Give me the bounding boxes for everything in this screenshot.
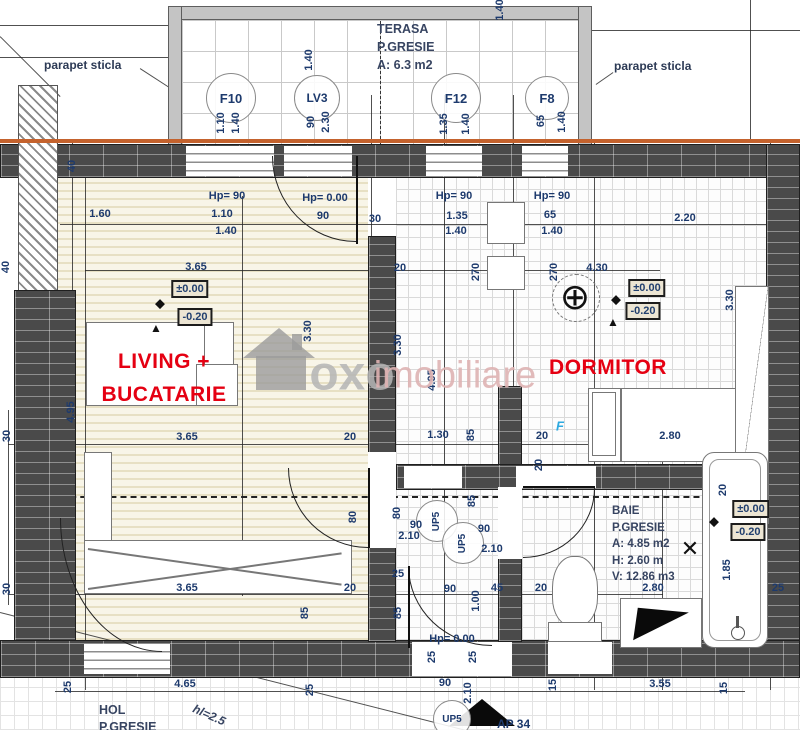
parapet-orange-line bbox=[0, 139, 800, 143]
tag-circle-lv3: LV3 bbox=[294, 75, 340, 121]
level-marker: ±0.00 bbox=[171, 280, 208, 298]
dim-label: 25 bbox=[392, 568, 404, 580]
hp-label: Hp= 90 bbox=[534, 190, 570, 202]
symbol-mark: ⊕ bbox=[560, 279, 590, 315]
bed-pillow bbox=[592, 392, 616, 456]
dim-label: 4.95 bbox=[65, 401, 77, 422]
dim-label: 1.40 bbox=[494, 0, 506, 21]
dim-label: 85 bbox=[465, 429, 477, 441]
dim-label: 25 bbox=[467, 651, 479, 663]
bed-line bbox=[620, 389, 622, 461]
tag-label: UP5 bbox=[457, 533, 468, 552]
window-opening-f8 bbox=[522, 146, 568, 176]
opening-baie-niche bbox=[548, 642, 612, 674]
level-marker: -0.20 bbox=[730, 523, 765, 541]
dim-label: 20 bbox=[535, 582, 547, 594]
dim-label: 40 bbox=[66, 160, 78, 172]
living-door-opening bbox=[368, 452, 396, 548]
dim-line bbox=[592, 30, 800, 31]
symbol-mark: ◆ bbox=[709, 515, 719, 528]
dim-label: 2.10 bbox=[398, 530, 419, 542]
dim-label: 2.20 bbox=[674, 212, 695, 224]
parapet-right-leader bbox=[596, 72, 614, 85]
terasa-finish: P.GRESIE bbox=[377, 38, 434, 56]
dim-label: 3.65 bbox=[176, 582, 197, 594]
baie-name: BAIE bbox=[612, 503, 675, 520]
dim-label: 1.30 bbox=[427, 429, 448, 441]
dim-label: 3.30 bbox=[724, 289, 736, 310]
dim-label: 40 bbox=[0, 261, 12, 273]
dim-label: 85 bbox=[392, 607, 404, 619]
terasa-name: TERASA bbox=[377, 20, 434, 38]
symbol-mark: ◆ bbox=[155, 297, 165, 310]
baie-area: A: 4.85 m2 bbox=[612, 536, 675, 553]
dim-label: 3.65 bbox=[176, 431, 197, 443]
level-marker: ±0.00 bbox=[732, 500, 769, 518]
symbol-mark: ▲ bbox=[607, 316, 619, 328]
living-door-leaf bbox=[368, 468, 370, 548]
bathtub-tap-stem bbox=[736, 616, 739, 628]
apartment-label: AP 34 bbox=[497, 717, 530, 730]
symbol-mark: ◆ bbox=[611, 293, 621, 306]
dim-line bbox=[242, 196, 243, 596]
hp-label: Hp= 90 bbox=[209, 190, 245, 202]
symbol-mark: ✕ bbox=[681, 538, 699, 560]
tag-label: LV3 bbox=[306, 91, 327, 105]
symbol-mark: ▲ bbox=[150, 322, 162, 334]
parapet-label-left: parapet sticla bbox=[44, 58, 121, 72]
dim-label: 20 bbox=[533, 459, 545, 471]
dim-label: 25 bbox=[304, 684, 316, 696]
entrance-door-leaf bbox=[408, 566, 410, 648]
terrace-wall-left bbox=[168, 6, 182, 145]
dim-label: 1.00 bbox=[470, 590, 482, 611]
dormitor-desk bbox=[487, 202, 525, 244]
window-opening-f10 bbox=[186, 146, 274, 176]
dim-label: 1.40 bbox=[556, 111, 568, 132]
dim-label: 1.40 bbox=[215, 225, 236, 237]
dim-label: 15 bbox=[547, 679, 559, 691]
bathtub-tap bbox=[731, 626, 745, 640]
dim-label: 4.95 bbox=[426, 369, 438, 390]
level-marker: ±0.00 bbox=[628, 279, 665, 297]
parapet-label-right: parapet sticla bbox=[614, 59, 691, 73]
tag-label: F10 bbox=[220, 91, 242, 106]
dim-label: 80 bbox=[391, 507, 403, 519]
dim-label: 30 bbox=[1, 583, 13, 595]
dim-line bbox=[85, 150, 86, 690]
dim-line bbox=[55, 691, 745, 692]
dim-label: 90 bbox=[478, 523, 490, 535]
hol-info: HOL P.GRESIE bbox=[99, 702, 156, 730]
window-opening-f12 bbox=[426, 146, 482, 176]
axis-dashed-line bbox=[30, 496, 800, 498]
wall-left-hatch bbox=[18, 85, 58, 292]
wall-left bbox=[14, 290, 76, 662]
dim-label: 1.40 bbox=[230, 112, 242, 133]
dormitor-label: DORMITOR bbox=[549, 356, 667, 380]
hp-label: Hp= 0.00 bbox=[429, 633, 475, 645]
wall-top bbox=[0, 144, 800, 178]
dim-line bbox=[60, 224, 800, 225]
dim-label: 25 bbox=[772, 582, 784, 594]
parapet-left-leader bbox=[140, 68, 171, 89]
dim-label: 3.30 bbox=[392, 334, 404, 355]
dim-label: 65 bbox=[544, 209, 556, 221]
hol-name: HOL bbox=[99, 702, 156, 719]
tag-label: F12 bbox=[445, 91, 467, 106]
dim-label: 3.65 bbox=[185, 261, 206, 273]
terasa-area: A: 6.3 m2 bbox=[377, 56, 434, 74]
dim-label: F bbox=[556, 419, 564, 434]
dim-label: 15 bbox=[718, 682, 730, 694]
dim-label: 80 bbox=[347, 511, 359, 523]
dim-label: 20 bbox=[344, 582, 356, 594]
baie-height: H: 2.60 m bbox=[612, 553, 675, 570]
dim-label: 2.80 bbox=[642, 582, 663, 594]
dim-label: 270 bbox=[470, 263, 482, 281]
level-marker: -0.20 bbox=[177, 308, 212, 326]
terrace-wall-top bbox=[168, 6, 592, 20]
dim-label: 4.30 bbox=[586, 262, 607, 274]
dim-label: 4.65 bbox=[174, 678, 195, 690]
dormitor-dresser bbox=[487, 256, 525, 290]
dim-label: 2.10 bbox=[481, 543, 502, 555]
dim-label: 1.85 bbox=[721, 559, 733, 580]
dim-label: 85 bbox=[299, 607, 311, 619]
living-label-line1: LIVING + bbox=[118, 350, 210, 374]
dim-label: 90 bbox=[317, 210, 329, 222]
dim-label: 20 bbox=[717, 484, 729, 496]
dim-label: 65 bbox=[535, 115, 547, 127]
dim-label: 1.60 bbox=[89, 208, 110, 220]
dim-line bbox=[0, 25, 168, 26]
baie-finish: P.GRESIE bbox=[612, 520, 675, 537]
dim-label: 2.80 bbox=[659, 430, 680, 442]
dim-label: 1.40 bbox=[541, 225, 562, 237]
level-marker: -0.20 bbox=[625, 302, 660, 320]
baie-door-opening bbox=[516, 466, 596, 488]
dim-label: 25 bbox=[62, 681, 74, 693]
dim-label: 20 bbox=[344, 431, 356, 443]
wall-living-hall bbox=[368, 236, 396, 642]
terasa-info: TERASA P.GRESIE A: 6.3 m2 bbox=[377, 20, 434, 74]
hp-label: Hp= 0.00 bbox=[302, 192, 348, 204]
toilet-tank bbox=[548, 622, 602, 642]
dim-label: 2.10 bbox=[462, 682, 474, 703]
dim-label: 3.55 bbox=[649, 678, 670, 690]
terrace-wall-right bbox=[578, 6, 592, 145]
tag-circle-up5: UP5 bbox=[433, 700, 471, 730]
tag-label: F8 bbox=[539, 91, 554, 106]
balcony-door-leaf bbox=[356, 156, 358, 244]
dim-line bbox=[750, 0, 751, 140]
dim-label: 30 bbox=[1, 430, 13, 442]
baie-info: BAIE P.GRESIE A: 4.85 m2 H: 2.60 m V: 12… bbox=[612, 503, 675, 586]
dim-label: 1.10 bbox=[215, 112, 227, 133]
dim-label: 30 bbox=[369, 213, 381, 225]
dim-label: 90 bbox=[444, 583, 456, 595]
dim-label: 270 bbox=[548, 263, 560, 281]
dim-label: 1.40 bbox=[460, 113, 472, 134]
floor-plan: oxo imobiliare LIVING + BUCATARIE DORMIT… bbox=[0, 0, 800, 730]
hol-finish: P.GRESIE bbox=[99, 719, 156, 730]
dim-label: 25 bbox=[426, 651, 438, 663]
tag-label: UP5 bbox=[431, 511, 442, 530]
dim-label: 45 bbox=[491, 582, 503, 594]
baie-door-leaf bbox=[523, 486, 595, 488]
tag-label: UP5 bbox=[442, 714, 461, 725]
dim-label: 1.40 bbox=[445, 225, 466, 237]
living-label-line2: BUCATARIE bbox=[101, 383, 226, 407]
toilet bbox=[552, 556, 598, 626]
dim-label: 85 bbox=[466, 495, 478, 507]
dim-label: 1.40 bbox=[303, 49, 315, 70]
dim-label: 90 bbox=[439, 677, 451, 689]
dim-label: 3.30 bbox=[302, 320, 314, 341]
dim-label: 20 bbox=[394, 262, 406, 274]
hp-label: Hp= 90 bbox=[436, 190, 472, 202]
dim-label: 1.10 bbox=[211, 208, 232, 220]
dim-label: 2.30 bbox=[320, 111, 332, 132]
dim-label: 20 bbox=[536, 430, 548, 442]
dim-label: 1.35 bbox=[446, 210, 467, 222]
dormitor-opening bbox=[404, 466, 462, 488]
dim-label: 1.35 bbox=[438, 113, 450, 134]
dim-label: 90 bbox=[305, 116, 317, 128]
